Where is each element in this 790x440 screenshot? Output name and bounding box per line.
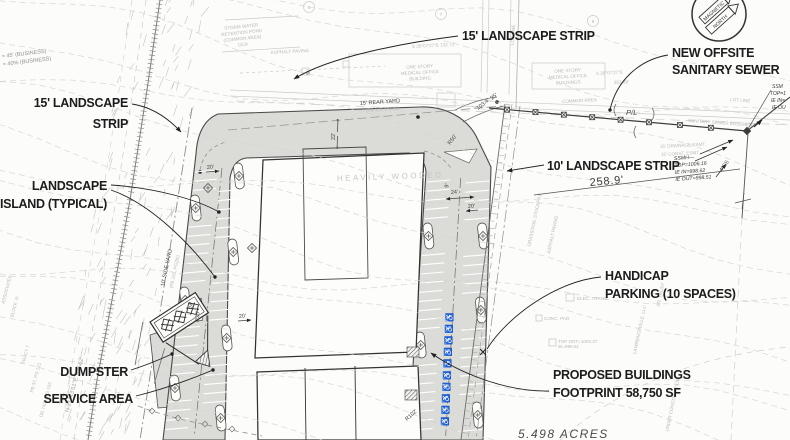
pond-note: DCA xyxy=(238,41,249,47)
dim-24: 24' xyxy=(451,190,459,196)
dim-r30: R30' xyxy=(195,311,202,323)
plat-note: BLOCK 'A' xyxy=(9,295,19,317)
lot-line-note: LOT LINE xyxy=(730,97,751,103)
north-arrow: MAGNETIC NORTH xyxy=(692,0,746,41)
ssmh-corner-note: IE IN= xyxy=(771,98,785,104)
svg-text:♿: ♿ xyxy=(441,405,450,414)
plan-note-number: 7 xyxy=(440,12,443,17)
label-proposed-buildings: FOOTPRINT 58,750 SF xyxy=(553,386,681,400)
conc-pad-note: CONC. PAD xyxy=(544,316,570,321)
plan-note-number: 8 xyxy=(592,19,595,24)
site-plan-sheet: 6 7 8 STORM WATER RETENTION POND (COMMON… xyxy=(0,0,790,440)
svg-text:♿: ♿ xyxy=(445,324,454,333)
label-landscape-island: LANDSCAPE xyxy=(32,179,107,193)
office-building-note: MEDICAL OFFICE xyxy=(549,73,588,80)
ssmh-corner-note: SSM xyxy=(772,84,784,90)
dim-25: 25' xyxy=(490,92,499,101)
plat-note: ASSOCIATES xyxy=(0,275,12,304)
svg-text:♿: ♿ xyxy=(444,347,453,356)
building-1-footprint xyxy=(255,153,424,358)
bearing-right: S 26°07'27"E xyxy=(596,70,623,76)
svg-text:♿: ♿ xyxy=(442,382,451,391)
building-2-footprint xyxy=(257,366,421,440)
stair-hatch xyxy=(405,390,417,400)
label-offsite-sewer: NEW OFFSITE xyxy=(672,46,754,60)
asphalt-note-2: ASPHALT PAVING xyxy=(546,215,559,254)
elec-trans-note: ELEC. TRANS. xyxy=(577,296,608,301)
office-building-note: MEDICAL OFFICE xyxy=(401,69,440,76)
grate-note: IE=998.81 xyxy=(558,344,580,349)
stockpile-note: GRASS/SOIL STOCKPILE xyxy=(526,192,542,246)
pipe-label: 4"SS xyxy=(719,159,731,173)
label-proposed-buildings: PROPOSED BUILDINGS xyxy=(553,368,691,382)
stair-hatch xyxy=(407,347,419,357)
label-acres: 5.498 ACRES xyxy=(518,427,609,440)
label-handicap: PARKING (10 SPACES) xyxy=(605,287,736,301)
office-building-note: BUILDINGS xyxy=(556,79,581,85)
dim-24b: 24' xyxy=(189,302,196,310)
svg-text:♿: ♿ xyxy=(443,371,452,380)
label-landscape-strip-10: 10' LANDSCAPE STRIP xyxy=(547,159,680,173)
dim-258: 258.9' xyxy=(589,174,624,189)
label-landscape-strip-left: 15' LANDSCAPE xyxy=(34,96,128,110)
label-landscape-strip-top: 15' LANDSCAPE STRIP xyxy=(462,29,595,43)
office-building-note: BUILDING xyxy=(409,75,431,81)
label-service-area: SERVICE AREA xyxy=(44,392,134,406)
common-area-note: COMMON AREA xyxy=(562,97,598,104)
asphalt-note: ASPHALT PAVING xyxy=(271,48,310,55)
label-landscape-strip-left: STRIP xyxy=(93,117,128,131)
dim-22: 22' xyxy=(331,133,337,140)
bearing-top: S 26°07'27"E 132.72' xyxy=(412,42,456,49)
dim-20: 20' xyxy=(468,204,476,210)
ssmh-corner-note: TOP=1 xyxy=(770,91,786,97)
svg-text:♿: ♿ xyxy=(444,336,453,345)
property-line-label: P/L xyxy=(626,108,637,117)
label-offsite-sewer: SANITARY SEWER xyxy=(672,63,780,77)
label-handicap: HANDICAP xyxy=(605,269,669,283)
svg-text:♿: ♿ xyxy=(442,394,451,403)
site-plan-canvas: 6 7 8 STORM WATER RETENTION POND (COMMON… xyxy=(0,0,790,440)
ssmh-corner-note: IE OU xyxy=(772,105,786,111)
dim-20: 20' xyxy=(207,164,215,171)
plat-note: PB 37, PG 121 xyxy=(29,362,42,393)
plat-note: TRACT 7 xyxy=(21,344,31,364)
label-dumpster: DUMPSTER xyxy=(60,365,128,379)
ssmh-note: IE OUT=998.51 xyxy=(675,174,712,183)
label-landscape-island: ISLAND (TYPICAL) xyxy=(0,197,107,211)
dim-20: 20' xyxy=(239,313,247,320)
